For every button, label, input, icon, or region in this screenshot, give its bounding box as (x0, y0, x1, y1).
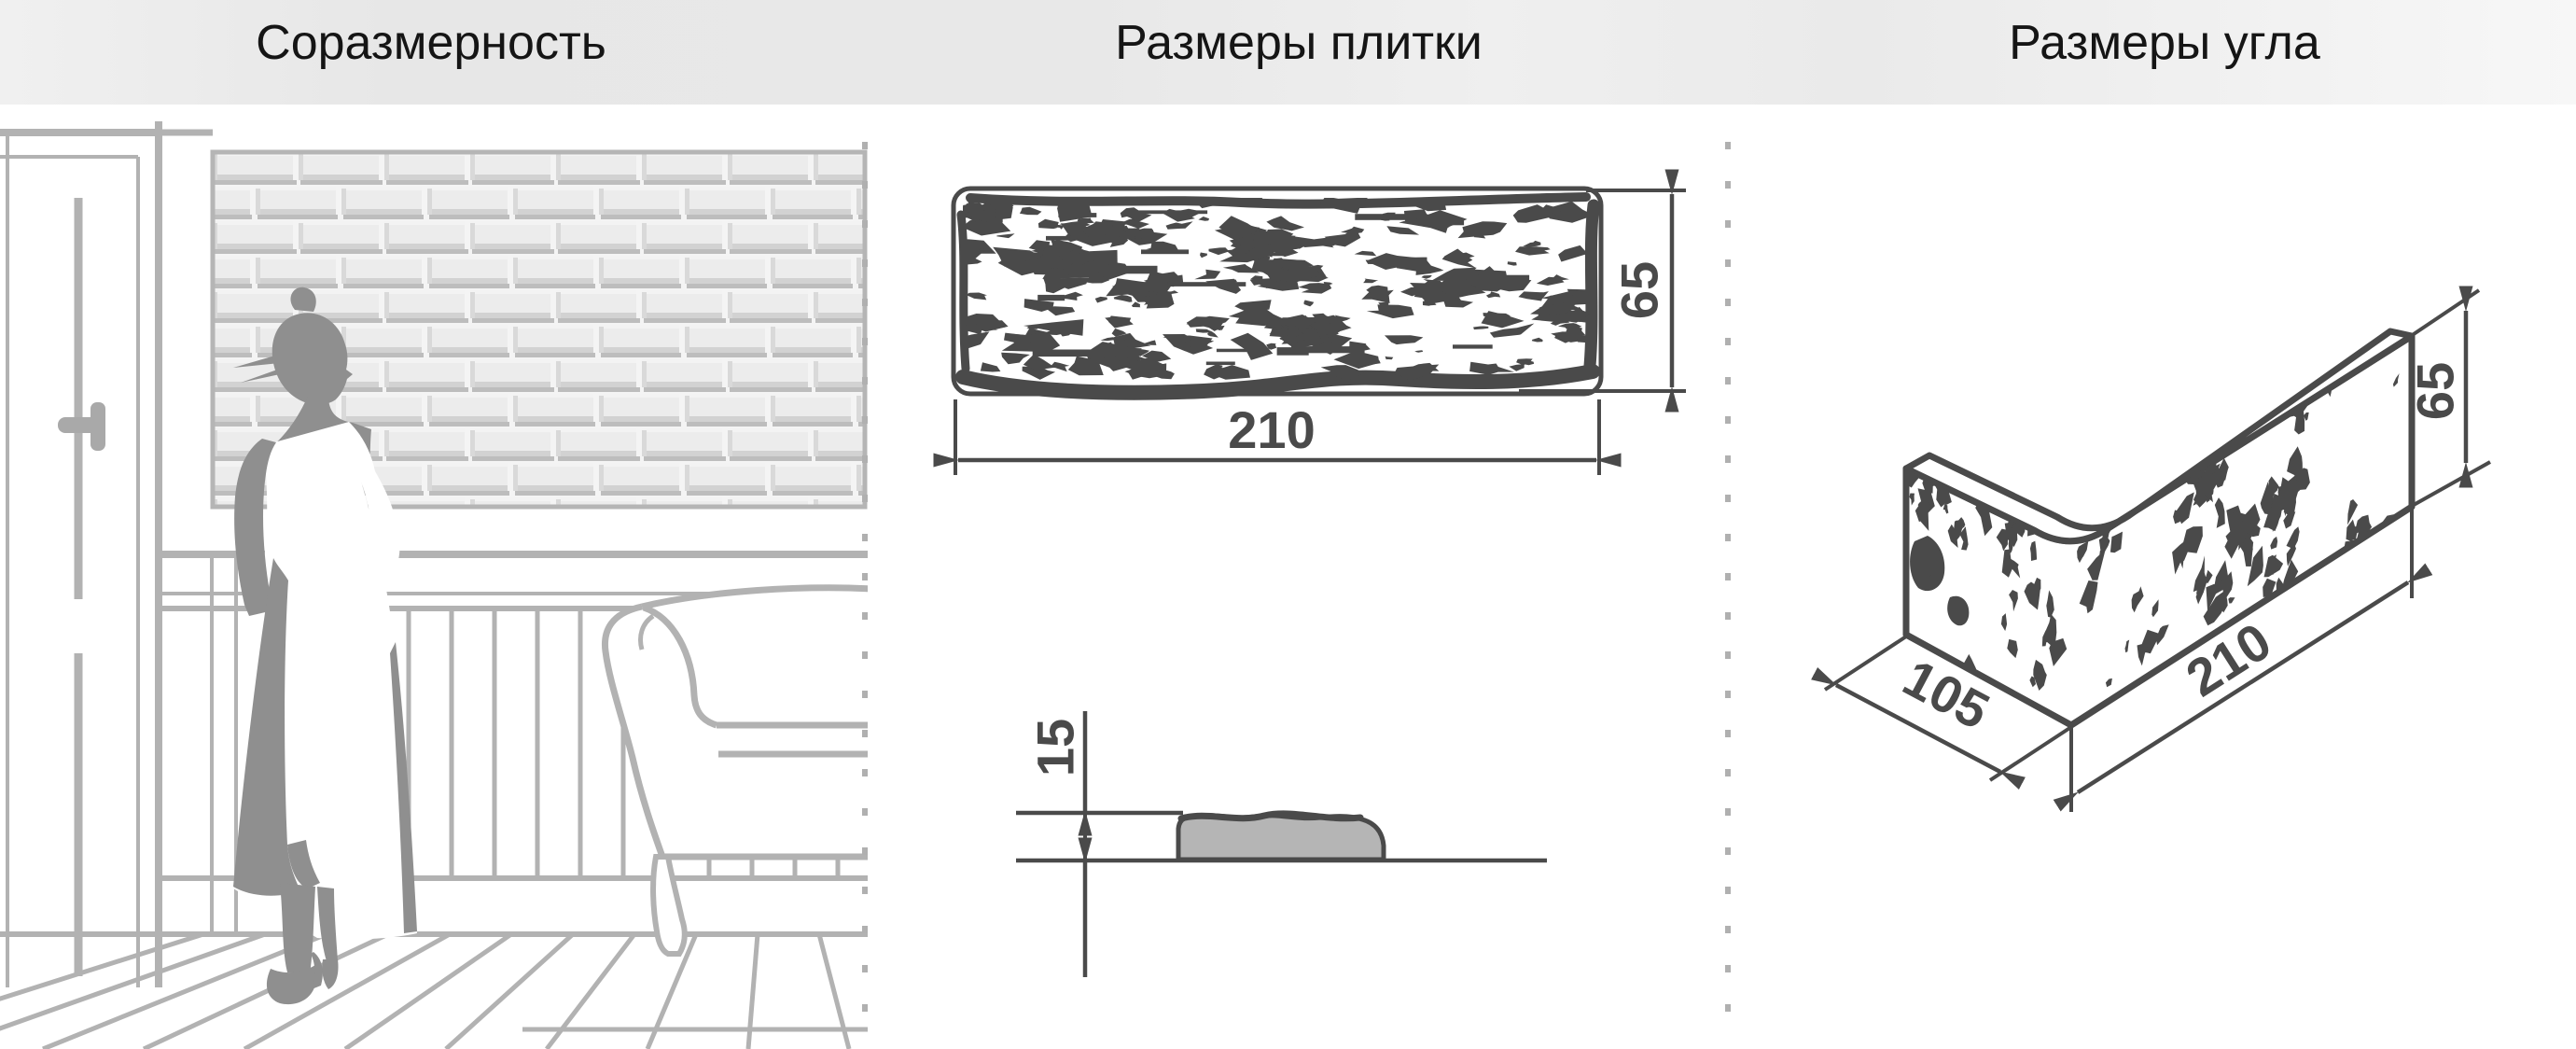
tile-dimensions-infographic: 65 210 15 (0, 0, 2576, 1049)
tile-height-label: 65 (1610, 261, 1669, 319)
heel (322, 959, 338, 989)
corner-height-label: 65 (2406, 362, 2465, 420)
floor (0, 934, 868, 1049)
section-title-tile-sizes: Размеры плитки (1115, 15, 1483, 71)
proportion-scene (0, 121, 872, 1049)
tile-profile (1178, 815, 1384, 860)
tile-width-label: 210 (1228, 400, 1315, 459)
tile-thickness-label: 15 (1026, 719, 1085, 776)
header-band: Соразмерность Размеры плитки Размеры угл… (0, 0, 2576, 105)
corner-front-faces (1906, 336, 2412, 725)
section-title-corner-sizes: Размеры угла (2009, 15, 2320, 71)
corner-tile-view: 105 210 65 (1825, 290, 2490, 812)
diagram-canvas: 65 210 15 (0, 0, 2576, 1049)
sofa-leg (653, 857, 685, 954)
door (0, 121, 159, 987)
leg (280, 883, 315, 974)
section-title-proportion: Соразмерность (256, 15, 606, 71)
sofa (605, 588, 872, 954)
tile-side-view: 15 (1016, 711, 1547, 977)
tile-front-view: 65 210 (942, 189, 1686, 475)
